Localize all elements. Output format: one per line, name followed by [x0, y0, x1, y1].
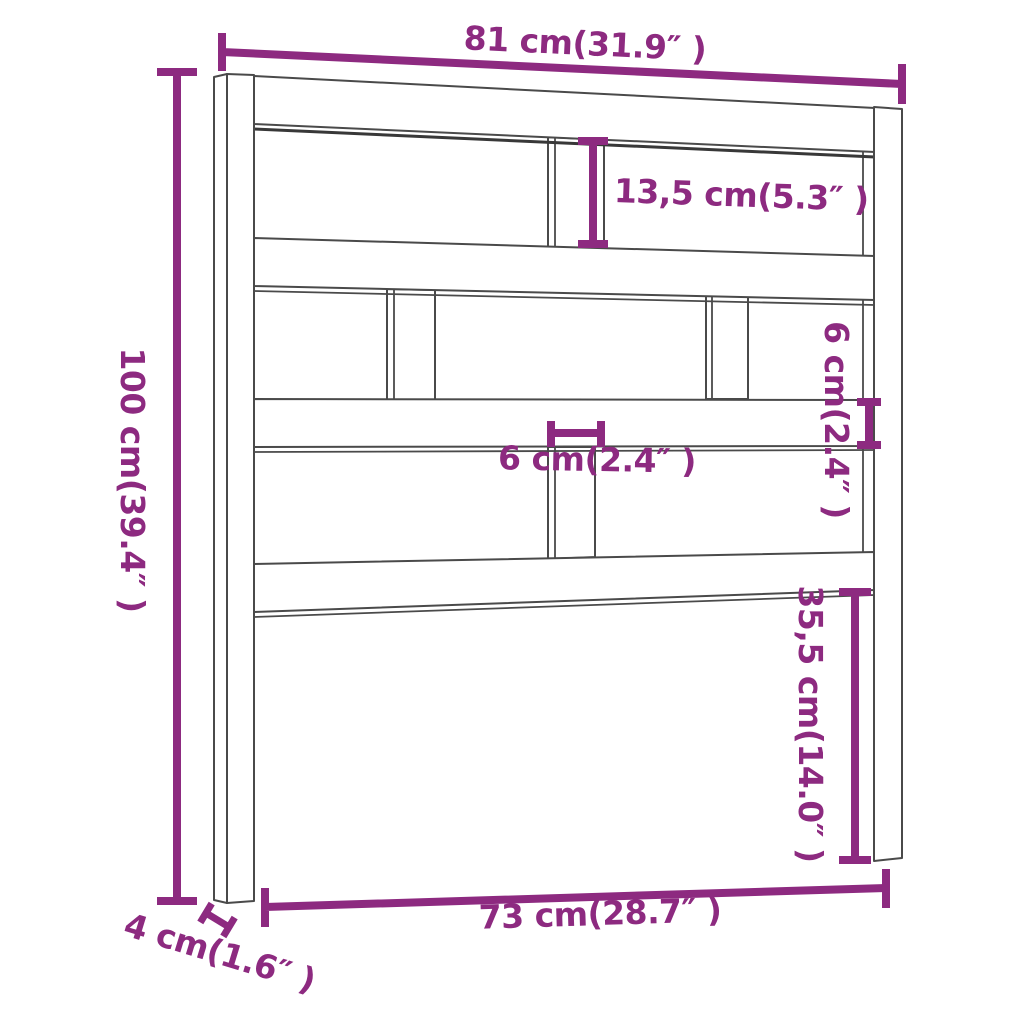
dim-total-height-label: 100 cm(39.4″ )	[113, 347, 152, 612]
headboard-dimension-diagram: 81 cm(31.9″ ) 100 cm(39.4″ ) 13,5 cm(5.3…	[0, 0, 1024, 1024]
dim-inner-width: 73 cm(28.7″ )	[265, 869, 886, 937]
diagram-canvas: 81 cm(31.9″ ) 100 cm(39.4″ ) 13,5 cm(5.3…	[0, 0, 1024, 1024]
dim-lower-section-label: 35,5 cm(14.0″ )	[791, 585, 830, 862]
dim-slat-width-label: 6 cm(2.4″ )	[498, 438, 696, 480]
dim-rail-thickness-label: 6 cm(2.4″ )	[817, 321, 856, 519]
second-rail	[254, 238, 875, 300]
dim-post-depth: 4 cm(1.6″ )	[120, 904, 321, 1000]
dim-inner-width-label: 73 cm(28.7″ )	[478, 890, 722, 937]
left-post-side-face	[214, 74, 227, 903]
dim-lower-section-lines	[839, 592, 871, 860]
dim-total-height-lines	[157, 72, 197, 901]
dim-lower-section: 35,5 cm(14.0″ )	[791, 585, 871, 862]
dim-upper-opening: 13,5 cm(5.3″ )	[578, 141, 869, 244]
dim-upper-opening-label: 13,5 cm(5.3″ )	[613, 171, 869, 219]
right-post	[874, 107, 902, 861]
dim-rail-thickness: 6 cm(2.4″ )	[817, 321, 881, 519]
dim-total-height: 100 cm(39.4″ )	[113, 72, 197, 901]
bottom-rail	[254, 552, 875, 612]
left-post-front-face	[227, 74, 254, 903]
